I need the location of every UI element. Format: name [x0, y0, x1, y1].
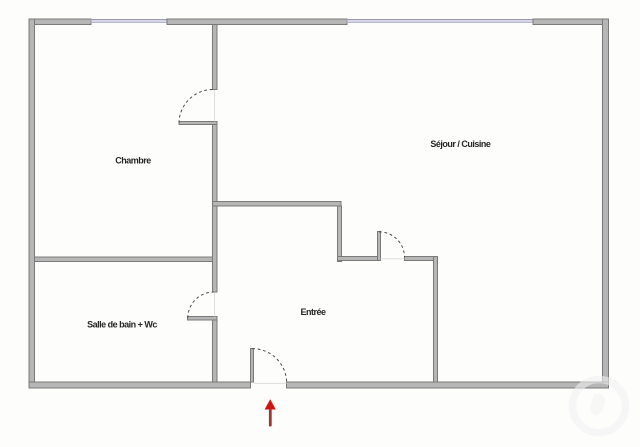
svg-text:Séjour / Cuisine: Séjour / Cuisine [430, 139, 491, 149]
svg-text:Salle de bain + Wc: Salle de bain + Wc [87, 320, 157, 330]
svg-text:Chambre: Chambre [115, 156, 151, 166]
svg-text:Entrée: Entrée [300, 307, 326, 317]
